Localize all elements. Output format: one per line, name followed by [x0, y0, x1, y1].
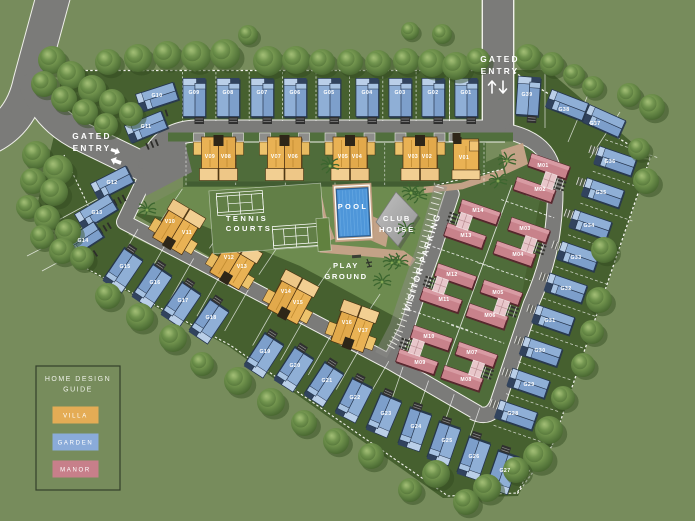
svg-text:G34: G34 [583, 223, 594, 229]
svg-text:M03: M03 [519, 226, 530, 232]
svg-text:G31: G31 [544, 318, 555, 324]
svg-text:M01: M01 [537, 163, 548, 169]
svg-text:V06: V06 [288, 154, 298, 160]
svg-text:G33: G33 [570, 255, 581, 261]
svg-text:M11: M11 [438, 297, 449, 303]
svg-text:V08: V08 [221, 154, 231, 160]
svg-text:HOUSE: HOUSE [379, 225, 415, 234]
svg-text:V04: V04 [352, 154, 362, 160]
svg-text:PLAY: PLAY [333, 261, 359, 270]
svg-text:V01: V01 [459, 155, 469, 161]
svg-text:G32: G32 [560, 286, 571, 292]
svg-text:G17: G17 [177, 298, 188, 304]
svg-text:G26: G26 [468, 454, 479, 460]
svg-text:M04: M04 [512, 252, 523, 258]
svg-text:V09: V09 [205, 154, 215, 160]
svg-text:V13: V13 [237, 264, 247, 270]
svg-text:M02: M02 [534, 187, 545, 193]
svg-text:ENTRY: ENTRY [73, 143, 112, 153]
svg-text:GUIDE: GUIDE [63, 387, 93, 394]
svg-text:V05: V05 [338, 154, 348, 160]
svg-text:G37: G37 [589, 121, 600, 127]
svg-text:G18: G18 [205, 315, 216, 321]
svg-text:V12: V12 [224, 255, 234, 261]
svg-text:G15: G15 [119, 264, 130, 270]
svg-text:GATED: GATED [72, 131, 111, 141]
svg-text:CLUB: CLUB [383, 214, 411, 223]
svg-text:V17: V17 [358, 328, 368, 334]
svg-text:G09: G09 [188, 90, 199, 96]
svg-text:G13: G13 [91, 210, 102, 216]
svg-text:MANOR: MANOR [60, 468, 91, 474]
svg-text:M05: M05 [492, 290, 503, 296]
svg-text:TENNIS: TENNIS [226, 214, 268, 223]
svg-text:G14: G14 [77, 238, 88, 244]
svg-text:M14: M14 [472, 208, 483, 214]
svg-text:VILLA: VILLA [63, 414, 88, 420]
svg-text:G03: G03 [394, 90, 405, 96]
svg-text:G08: G08 [222, 90, 233, 96]
svg-text:V14: V14 [281, 289, 291, 295]
svg-text:G30: G30 [534, 348, 545, 354]
svg-text:G39: G39 [521, 92, 532, 98]
svg-text:G38: G38 [558, 107, 569, 113]
svg-text:G06: G06 [289, 90, 300, 96]
svg-text:POOL: POOL [338, 202, 369, 211]
svg-text:G28: G28 [507, 411, 518, 417]
svg-text:G01: G01 [460, 90, 471, 96]
svg-text:M13: M13 [460, 233, 471, 239]
svg-text:G11: G11 [141, 124, 152, 130]
svg-text:G16: G16 [149, 280, 160, 286]
svg-text:V02: V02 [422, 154, 432, 160]
svg-text:GROUND: GROUND [324, 272, 367, 281]
svg-text:M09: M09 [414, 360, 425, 366]
svg-text:G20: G20 [289, 363, 300, 369]
svg-text:V11: V11 [182, 230, 192, 236]
svg-text:G22: G22 [349, 395, 360, 401]
svg-text:G36: G36 [604, 159, 615, 165]
svg-text:G12: G12 [106, 180, 117, 186]
svg-text:G29: G29 [523, 382, 534, 388]
svg-text:M10: M10 [423, 334, 434, 340]
svg-text:G05: G05 [323, 90, 334, 96]
svg-text:M08: M08 [460, 377, 471, 383]
svg-text:COURTS: COURTS [226, 224, 272, 233]
svg-text:G02: G02 [427, 90, 438, 96]
svg-text:G25: G25 [441, 438, 452, 444]
svg-text:V07: V07 [271, 154, 281, 160]
svg-text:G35: G35 [595, 190, 606, 196]
svg-text:GATED: GATED [480, 54, 519, 64]
svg-text:V03: V03 [408, 154, 418, 160]
svg-text:G24: G24 [410, 424, 421, 430]
svg-text:G07: G07 [256, 90, 267, 96]
svg-text:M12: M12 [446, 272, 457, 278]
svg-text:G19: G19 [259, 349, 270, 355]
svg-text:G27: G27 [499, 468, 510, 474]
svg-text:GARDEN: GARDEN [58, 441, 94, 447]
svg-text:V16: V16 [342, 320, 352, 326]
svg-text:G04: G04 [361, 90, 372, 96]
svg-text:ENTRY: ENTRY [481, 66, 520, 76]
svg-text:HOME DESIGN: HOME DESIGN [45, 376, 111, 383]
svg-text:V15: V15 [293, 300, 303, 306]
svg-text:G10: G10 [151, 93, 162, 99]
svg-text:G23: G23 [380, 411, 391, 417]
svg-text:G21: G21 [321, 378, 332, 384]
svg-text:V10: V10 [165, 219, 175, 225]
svg-text:M06: M06 [484, 313, 495, 319]
svg-text:M07: M07 [466, 350, 477, 356]
